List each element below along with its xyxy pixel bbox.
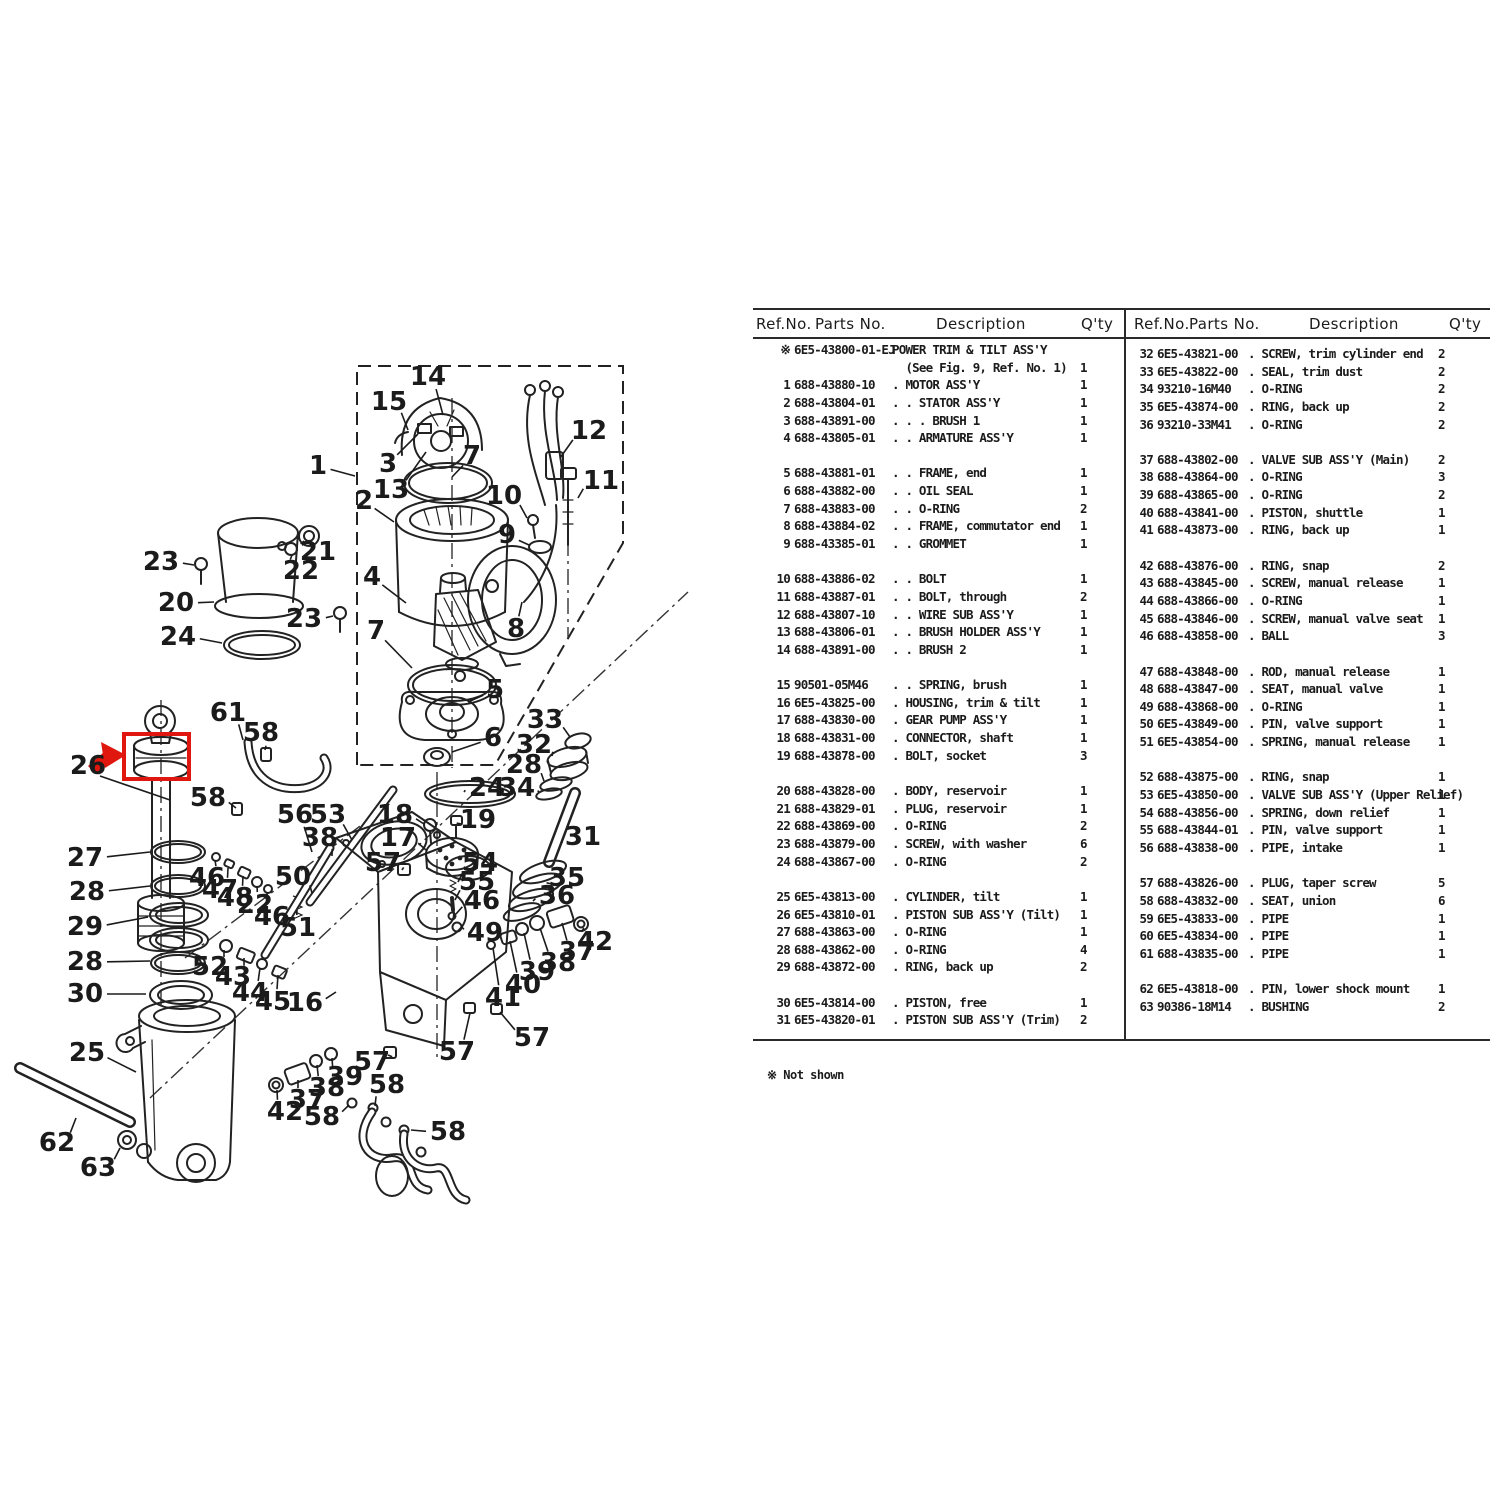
cell-qty: 1 — [1080, 923, 1110, 941]
part-callout: 58 — [190, 783, 226, 813]
cell-description: . PIN, valve support — [1248, 715, 1438, 733]
cell-qty: 1 — [1438, 980, 1468, 998]
cell-qty: 2 — [1438, 486, 1468, 504]
cell-qty: 1 — [1080, 394, 1110, 412]
cell-refno: 13 — [753, 623, 790, 641]
cell-qty: 2 — [1080, 1011, 1110, 1029]
cell-partsno: 688-43804-01 — [794, 394, 892, 412]
cell-refno: 5 — [753, 464, 790, 482]
cell-qty: 1 — [1438, 715, 1468, 733]
cell-partsno: 688-43828-00 — [794, 782, 892, 800]
cell-description: . GEAR PUMP ASS'Y — [892, 711, 1080, 729]
cell-description: . BUSHING — [1248, 998, 1438, 1016]
cell-refno: 2 — [753, 394, 790, 412]
cell-description: . SEAL, trim dust — [1248, 363, 1438, 381]
table-row: 23688-43879-00. SCREW, with washer6 — [753, 835, 1121, 853]
table-row: 39688-43865-00. O-RING2 — [1129, 486, 1489, 504]
cell-refno: 40 — [1129, 504, 1153, 522]
cell-description: . CYLINDER, tilt — [892, 888, 1080, 906]
table-row: 256E5-43813-00. CYLINDER, tilt1 — [753, 888, 1121, 906]
cell-description: . . BOLT, through — [892, 588, 1080, 606]
cell-refno: 28 — [753, 941, 790, 959]
cell-description: . PLUG, reservoir — [892, 800, 1080, 818]
cell-qty: 1 — [1438, 521, 1468, 539]
cell-partsno: 688-43865-00 — [1157, 486, 1248, 504]
table-row-spacer — [1129, 645, 1489, 663]
cell-refno: 48 — [1129, 680, 1153, 698]
cell-description: . RING, back up — [1248, 398, 1438, 416]
cell-qty: 2 — [1080, 817, 1110, 835]
cell-refno: 45 — [1129, 610, 1153, 628]
cell-partsno: 688-43887-01 — [794, 588, 892, 606]
part-callout: 42 — [267, 1097, 303, 1127]
cell-qty: 2 — [1080, 853, 1110, 871]
table-row: 49688-43868-00. O-RING1 — [1129, 698, 1489, 716]
cell-qty: 1 — [1438, 733, 1468, 751]
cell-qty: 1 — [1438, 839, 1468, 857]
cell-refno: 17 — [753, 711, 790, 729]
cell-qty: 2 — [1438, 380, 1468, 398]
part-callout: 41 — [485, 983, 521, 1013]
part-callout: 57 — [365, 848, 401, 878]
cell-description: . VALVE SUB ASS'Y (Upper Relief) — [1248, 786, 1438, 804]
cell-partsno: 688-43886-02 — [794, 570, 892, 588]
part-callout: 63 — [80, 1153, 116, 1183]
callout-leader — [519, 540, 529, 545]
cell-description: . RING, snap — [1248, 557, 1438, 575]
callout-leader — [200, 639, 222, 643]
cell-partsno: 688-43806-01 — [794, 623, 892, 641]
table-row: 516E5-43854-00. SPRING, manual release1 — [1129, 733, 1489, 751]
part-callout: 5 — [486, 675, 504, 705]
header-description: Description — [936, 315, 1026, 333]
cell-description: . . ARMATURE ASS'Y — [892, 429, 1080, 447]
cell-partsno: 688-43878-00 — [794, 747, 892, 765]
cell-description: . . FRAME, commutator end — [892, 517, 1080, 535]
cell-refno: 37 — [1129, 451, 1153, 469]
table-row: 29688-43872-00. RING, back up2 — [753, 958, 1121, 976]
parts-catalog-page: 1415131327121110982122232024234756615826… — [0, 0, 1500, 1500]
cell-refno: 62 — [1129, 980, 1153, 998]
table-row: 1688-43880-10. MOTOR ASS'Y1 — [753, 376, 1121, 394]
callout-leader — [107, 917, 148, 925]
part-callout: 19 — [460, 805, 496, 835]
callout-leader — [326, 992, 336, 999]
table-row: 3493210-16M40. O-RING2 — [1129, 380, 1489, 398]
cell-refno: 14 — [753, 641, 790, 659]
cell-qty: 1 — [1080, 994, 1110, 1012]
table-body-left: ※6E5-43800-01-EJPOWER TRIM & TILT ASS'Y … — [753, 339, 1121, 1029]
cell-description: . PISTON SUB ASS'Y (Trim) — [892, 1011, 1080, 1029]
cell-qty: 1 — [1080, 782, 1110, 800]
table-row: 47688-43848-00. ROD, manual release1 — [1129, 663, 1489, 681]
cell-refno: 52 — [1129, 768, 1153, 786]
cell-qty: 2 — [1438, 557, 1468, 575]
cell-partsno: 688-43832-00 — [1157, 892, 1248, 910]
cell-description: . . OIL SEAL — [892, 482, 1080, 500]
cell-refno: 21 — [753, 800, 790, 818]
cell-qty: 1 — [1080, 412, 1110, 430]
callout-leader — [533, 899, 535, 901]
cell-refno: 16 — [753, 694, 790, 712]
cell-partsno: 688-43838-00 — [1157, 839, 1248, 857]
cell-description: . PISTON, free — [892, 994, 1080, 1012]
table-row: 6688-43882-00. . OIL SEAL1 — [753, 482, 1121, 500]
callout-leader — [375, 508, 394, 522]
part-callout: 11 — [583, 466, 619, 496]
tilt-cylinder-group — [117, 1000, 235, 1182]
cell-qty: 1 — [1438, 698, 1468, 716]
cell-refno: 24 — [753, 853, 790, 871]
cell-refno: 42 — [1129, 557, 1153, 575]
table-row: 58688-43832-00. SEAT, union6 — [1129, 892, 1489, 910]
callout-leader — [493, 948, 499, 985]
part-callout: 45 — [255, 987, 291, 1017]
cell-partsno: 688-43864-00 — [1157, 468, 1248, 486]
cell-partsno: 6E5-43800-01-EJ — [794, 341, 892, 359]
cell-refno: 51 — [1129, 733, 1153, 751]
cell-partsno — [794, 359, 892, 377]
cell-description: . . WIRE SUB ASS'Y — [892, 606, 1080, 624]
part-callout: 28 — [69, 877, 105, 907]
cell-refno: 4 — [753, 429, 790, 447]
part-callout: 24 — [160, 622, 196, 652]
cell-partsno: 688-43881-01 — [794, 464, 892, 482]
table-row: 43688-43845-00. SCREW, manual release1 — [1129, 574, 1489, 592]
cell-refno: 29 — [753, 958, 790, 976]
cell-refno: 47 — [1129, 663, 1153, 681]
cell-description: . SCREW, trim cylinder end — [1248, 345, 1438, 363]
cell-partsno: 688-43847-00 — [1157, 680, 1248, 698]
part-callout: 26 — [70, 751, 106, 781]
callout-leader — [108, 1058, 136, 1072]
part-callout: 9 — [498, 520, 516, 550]
table-row: 1590501-05M46. . SPRING, brush1 — [753, 676, 1121, 694]
table-row: 266E5-43810-01. PISTON SUB ASS'Y (Tilt)1 — [753, 906, 1121, 924]
cell-description: . PIPE — [1248, 910, 1438, 928]
table-row: 356E5-43874-00. RING, back up2 — [1129, 398, 1489, 416]
cell-partsno: 6E5-43820-01 — [794, 1011, 892, 1029]
cell-description: . SPRING, down relief — [1248, 804, 1438, 822]
table-row: 166E5-43825-00. HOUSING, trim & tilt1 — [753, 694, 1121, 712]
part-callout: 30 — [67, 979, 103, 1009]
cell-partsno: 6E5-43822-00 — [1157, 363, 1248, 381]
cell-description: . PLUG, taper screw — [1248, 874, 1438, 892]
table-row: 22688-43869-00. O-RING2 — [753, 817, 1121, 835]
cell-refno: 46 — [1129, 627, 1153, 645]
cell-refno: 12 — [753, 606, 790, 624]
header-partsno: Parts No. — [1189, 315, 1260, 333]
cell-qty: 1 — [1438, 574, 1468, 592]
cell-qty: 1 — [1080, 570, 1110, 588]
cell-refno: 63 — [1129, 998, 1153, 1016]
part-callout: 58 — [369, 1070, 405, 1100]
table-row-spacer — [753, 870, 1121, 888]
part-callout: 36 — [539, 881, 575, 911]
table-body-right: 326E5-43821-00. SCREW, trim cylinder end… — [1129, 339, 1489, 1015]
part-callout: 22 — [283, 556, 319, 586]
part-callout: 13 — [373, 475, 409, 505]
cell-qty: 6 — [1438, 892, 1468, 910]
cell-partsno: 688-43869-00 — [794, 817, 892, 835]
callout-leader — [198, 602, 214, 603]
cell-partsno: 6E5-43818-00 — [1157, 980, 1248, 998]
cell-partsno: 688-43872-00 — [794, 958, 892, 976]
part-callout: 23 — [143, 547, 179, 577]
cell-qty: 2 — [1438, 363, 1468, 381]
part-callout: 16 — [287, 988, 323, 1018]
cell-description: . PISTON SUB ASS'Y (Tilt) — [892, 906, 1080, 924]
cell-partsno: 688-43880-10 — [794, 376, 892, 394]
cell-qty: 1 — [1438, 768, 1468, 786]
part-callout: 27 — [67, 843, 103, 873]
part-callout: 12 — [571, 416, 607, 446]
cell-refno: 10 — [753, 570, 790, 588]
cell-qty: 1 — [1438, 504, 1468, 522]
cell-partsno: 688-43862-00 — [794, 941, 892, 959]
header-qty: Q'ty — [1449, 315, 1481, 333]
part-callout: 50 — [275, 862, 311, 892]
cell-description: . O-RING — [1248, 380, 1438, 398]
table-row: 7688-43883-00. . O-RING2 — [753, 500, 1121, 518]
cell-description: . ROD, manual release — [1248, 663, 1438, 681]
callout-leader — [452, 742, 481, 752]
cell-qty: 1 — [1080, 623, 1110, 641]
cell-partsno: 688-43831-00 — [794, 729, 892, 747]
part-callout: 57 — [439, 1037, 475, 1067]
cell-partsno: 6E5-43810-01 — [794, 906, 892, 924]
cell-refno: 38 — [1129, 468, 1153, 486]
cell-description: . PIPE — [1248, 945, 1438, 963]
cell-qty: 2 — [1080, 958, 1110, 976]
table-row: 6390386-18M14. BUSHING2 — [1129, 998, 1489, 1016]
cell-qty: 6 — [1080, 835, 1110, 853]
cell-partsno: 6E5-43850-00 — [1157, 786, 1248, 804]
cell-qty: 2 — [1438, 451, 1468, 469]
callout-leader — [464, 790, 465, 792]
cell-qty: 1 — [1080, 906, 1110, 924]
cell-refno: ※ — [753, 341, 790, 359]
cell-refno: 57 — [1129, 874, 1153, 892]
table-row: 44688-43866-00. O-RING1 — [1129, 592, 1489, 610]
part-callout: 25 — [69, 1038, 105, 1068]
table-row: 54688-43856-00. SPRING, down relief1 — [1129, 804, 1489, 822]
parts-table: Ref.No. Parts No. Description Q'ty Ref.N… — [753, 308, 1490, 1041]
cell-description: . SEAT, manual valve — [1248, 680, 1438, 698]
cell-partsno: 6E5-43814-00 — [794, 994, 892, 1012]
cell-refno: 22 — [753, 817, 790, 835]
callout-leader — [563, 727, 570, 737]
table-row: 20688-43828-00. BODY, reservoir1 — [753, 782, 1121, 800]
cell-description: . BODY, reservoir — [892, 782, 1080, 800]
table-row: 316E5-43820-01. PISTON SUB ASS'Y (Trim)2 — [753, 1011, 1121, 1029]
part-callout: 28 — [67, 947, 103, 977]
table-row-spacer — [753, 659, 1121, 677]
table-row: 56688-43838-00. PIPE, intake1 — [1129, 839, 1489, 857]
cell-qty: 2 — [1438, 398, 1468, 416]
part-callout: 58 — [243, 718, 279, 748]
part-callout: 62 — [39, 1128, 75, 1158]
cell-partsno: 6E5-43833-00 — [1157, 910, 1248, 928]
table-row-spacer — [1129, 539, 1489, 557]
cell-partsno: 6E5-43849-00 — [1157, 715, 1248, 733]
cell-qty: 1 — [1080, 429, 1110, 447]
cell-qty: 2 — [1080, 588, 1110, 606]
callout-leader — [436, 389, 443, 415]
callout-leader — [411, 1130, 426, 1131]
table-row: 8688-43884-02. . FRAME, commutator end1 — [753, 517, 1121, 535]
cell-qty: 4 — [1080, 941, 1110, 959]
cell-description: . . BRUSH 2 — [892, 641, 1080, 659]
cell-description: . PIPE, intake — [1248, 839, 1438, 857]
part-callout: 7 — [463, 441, 481, 471]
part-callout: 14 — [410, 362, 446, 392]
callout-leader — [382, 585, 406, 603]
callout-leader — [524, 933, 530, 960]
table-row: 24688-43867-00. O-RING2 — [753, 853, 1121, 871]
part-callout: 28 — [506, 750, 542, 780]
cell-qty: 1 — [1438, 680, 1468, 698]
cell-description: . MOTOR ASS'Y — [892, 376, 1080, 394]
cell-description: . O-RING — [1248, 416, 1438, 434]
cell-partsno: 6E5-43813-00 — [794, 888, 892, 906]
part-callout: 15 — [371, 387, 407, 417]
cell-refno: 60 — [1129, 927, 1153, 945]
cell-description: . SPRING, manual release — [1248, 733, 1438, 751]
cell-description: . SEAT, union — [1248, 892, 1438, 910]
cell-qty: 1 — [1080, 482, 1110, 500]
bolt-through-group — [528, 468, 576, 553]
cell-partsno: 688-43846-00 — [1157, 610, 1248, 628]
cell-description: . RING, snap — [1248, 768, 1438, 786]
cell-qty: 1 — [1080, 800, 1110, 818]
cell-qty: 1 — [1438, 927, 1468, 945]
cell-partsno: 688-43884-02 — [794, 517, 892, 535]
part-callout: 31 — [565, 822, 601, 852]
cell-partsno: 688-43830-00 — [794, 711, 892, 729]
callout-leader — [538, 790, 539, 792]
cell-description: . O-RING — [1248, 486, 1438, 504]
cell-description: . . GROMMET — [892, 535, 1080, 553]
cell-partsno: 688-43882-00 — [794, 482, 892, 500]
table-row: 41688-43873-00. RING, back up1 — [1129, 521, 1489, 539]
table-row: 55688-43844-01. PIN, valve support1 — [1129, 821, 1489, 839]
cell-partsno: 688-43385-01 — [794, 535, 892, 553]
cell-refno: 49 — [1129, 698, 1153, 716]
callout-leader — [331, 469, 355, 476]
cell-description: . O-RING — [892, 817, 1080, 835]
table-row: 4688-43805-01. . ARMATURE ASS'Y1 — [753, 429, 1121, 447]
cell-partsno: 93210-33M41 — [1157, 416, 1248, 434]
cell-partsno: 688-43883-00 — [794, 500, 892, 518]
cell-qty: 1 — [1080, 888, 1110, 906]
cell-partsno: 688-43829-01 — [794, 800, 892, 818]
part-callout: 46 — [464, 886, 500, 916]
table-row: 606E5-43834-00. PIPE1 — [1129, 927, 1489, 945]
part-callout: 46 — [254, 902, 290, 932]
cell-qty: 1 — [1438, 610, 1468, 628]
cell-partsno: 688-43863-00 — [794, 923, 892, 941]
cell-qty: 1 — [1438, 910, 1468, 928]
cell-refno: 44 — [1129, 592, 1153, 610]
cell-partsno: 6E5-43834-00 — [1157, 927, 1248, 945]
table-row: 46688-43858-00. BALL3 — [1129, 627, 1489, 645]
part-callout: 4 — [363, 562, 381, 592]
table-row-spacer — [1129, 857, 1489, 875]
cell-partsno: 6E5-43854-00 — [1157, 733, 1248, 751]
cell-refno: 54 — [1129, 804, 1153, 822]
bottom-pipes-group — [348, 1099, 467, 1201]
callout-leader — [464, 1013, 470, 1040]
cell-refno: 27 — [753, 923, 790, 941]
cell-partsno: 90386-18M14 — [1157, 998, 1248, 1016]
table-row: 19688-43878-00. BOLT, socket3 — [753, 747, 1121, 765]
cell-partsno: 688-43873-00 — [1157, 521, 1248, 539]
table-row: 9688-43385-01. . GROMMET1 — [753, 535, 1121, 553]
cell-refno: 56 — [1129, 839, 1153, 857]
callout-leader — [107, 852, 150, 857]
part-callout: 61 — [210, 698, 246, 728]
table-row: 11688-43887-01. . BOLT, through2 — [753, 588, 1121, 606]
cell-qty: 3 — [1080, 747, 1110, 765]
header-partsno: Parts No. — [815, 315, 886, 333]
cell-partsno: 688-43826-00 — [1157, 874, 1248, 892]
cell-qty: 3 — [1438, 468, 1468, 486]
cell-refno: 25 — [753, 888, 790, 906]
cell-description: . . STATOR ASS'Y — [892, 394, 1080, 412]
table-row: 10688-43886-02. . BOLT1 — [753, 570, 1121, 588]
table-row: 40688-43841-00. PISTON, shuttle1 — [1129, 504, 1489, 522]
cell-qty: 3 — [1438, 627, 1468, 645]
cell-description: . O-RING — [1248, 698, 1438, 716]
part-callout: 38 — [302, 823, 338, 853]
callout-leader — [552, 752, 553, 756]
cell-partsno: 688-43876-00 — [1157, 557, 1248, 575]
cell-partsno: 688-43807-10 — [794, 606, 892, 624]
part-callout: 49 — [467, 918, 503, 948]
cell-refno: 30 — [753, 994, 790, 1012]
table-row: 3693210-33M41. O-RING2 — [1129, 416, 1489, 434]
table-row-spacer — [1129, 433, 1489, 451]
table-row: 27688-43863-00. O-RING1 — [753, 923, 1121, 941]
cell-refno: 41 — [1129, 521, 1153, 539]
table-row: 57688-43826-00. PLUG, taper screw5 — [1129, 874, 1489, 892]
part-callout: 2 — [355, 486, 373, 516]
cell-description: . VALVE SUB ASS'Y (Main) — [1248, 451, 1438, 469]
cell-description: . . BOLT — [892, 570, 1080, 588]
table-row-spacer — [753, 447, 1121, 465]
cell-qty: 1 — [1080, 641, 1110, 659]
cell-qty: 1 — [1080, 729, 1110, 747]
table-row: 17688-43830-00. GEAR PUMP ASS'Y1 — [753, 711, 1121, 729]
cell-partsno: 688-43879-00 — [794, 835, 892, 853]
table-row: 306E5-43814-00. PISTON, free1 — [753, 994, 1121, 1012]
table-row: 626E5-43818-00. PIN, lower shock mount1 — [1129, 980, 1489, 998]
table-row: 2688-43804-01. . STATOR ASS'Y1 — [753, 394, 1121, 412]
cell-refno: 43 — [1129, 574, 1153, 592]
part-callout: 20 — [158, 588, 194, 618]
cell-description: . HOUSING, trim & tilt — [892, 694, 1080, 712]
cell-description: . . SPRING, brush — [892, 676, 1080, 694]
cell-qty: 1 — [1080, 676, 1110, 694]
callout-leader — [456, 907, 462, 914]
cell-partsno: 90501-05M46 — [794, 676, 892, 694]
table-row: 536E5-43850-00. VALVE SUB ASS'Y (Upper R… — [1129, 786, 1489, 804]
table-row: 38688-43864-00. O-RING3 — [1129, 468, 1489, 486]
cell-partsno: 688-43891-00 — [794, 412, 892, 430]
cell-refno: 59 — [1129, 910, 1153, 928]
part-callout: 7 — [367, 616, 385, 646]
